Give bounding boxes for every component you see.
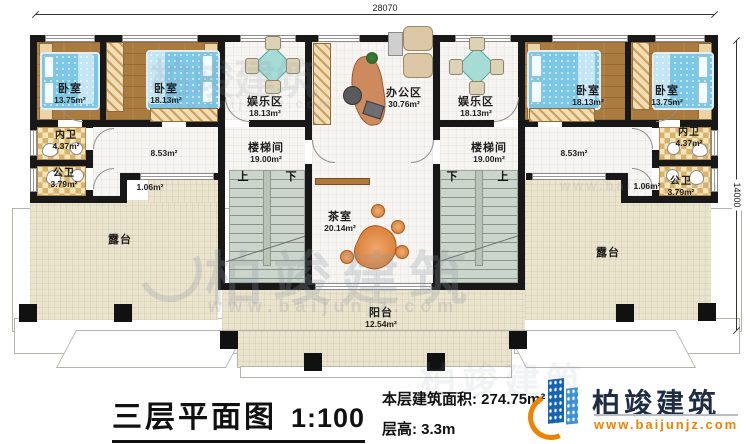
wardrobe: [106, 42, 124, 112]
pillar: [616, 304, 634, 322]
wardrobe: [632, 42, 650, 110]
room-label-bath-guest-l: 公卫3.79m²: [51, 168, 78, 189]
window: [45, 35, 95, 42]
brand-logo-building-icon: [548, 378, 564, 424]
room-label-balcony: 阳台12.54m²: [365, 308, 397, 329]
terrace-right-floor: [525, 200, 711, 320]
window: [30, 130, 37, 156]
room-label-bath-ensuite-r: 内卫4.37m²: [676, 127, 703, 148]
chair: [469, 37, 485, 51]
pillow: [698, 56, 708, 78]
pillar: [220, 331, 238, 349]
wall-guest-bath-r-bottom: [624, 196, 718, 203]
office-chair: [343, 86, 362, 105]
room-label-bedroom-l1: 卧室13.75m²: [54, 84, 86, 105]
wall-bath-l-inner: [86, 120, 93, 128]
area-label-landing-r: 1.06m²: [634, 181, 661, 191]
window: [318, 35, 360, 42]
dimension-line-top: [35, 14, 715, 15]
window: [140, 173, 214, 180]
stair-down-label-r: 下: [447, 168, 458, 184]
pillar: [698, 303, 716, 321]
chair: [449, 59, 463, 75]
pillow: [698, 82, 708, 104]
room-label-bath-ensuite-l: 内卫4.37m²: [53, 130, 80, 151]
room-label-entertainment-r: 娱乐区18.13m²: [458, 97, 494, 118]
room-label-entertainment-l: 娱乐区18.13m²: [247, 97, 283, 118]
floor-plan-canvas: 柏竣建筑 www.baijunjz.com 柏竣建筑 www.baijunjz.…: [0, 0, 750, 444]
stair-up-label-r: 上: [498, 168, 509, 184]
room-label-stairwell-l: 楼梯间19.00m²: [248, 143, 284, 164]
watermark-url: www.baijunjz.com: [208, 296, 459, 317]
wall-stair-r-outer: [518, 42, 525, 290]
wall-bath-r-divider: [657, 160, 718, 166]
stair-down-label-l: 下: [286, 168, 297, 184]
page-title: 三层平面图: [112, 401, 277, 434]
pillar: [304, 353, 322, 371]
dimension-tick: [711, 11, 718, 18]
pillar: [19, 304, 37, 322]
area-label-landing-l: 1.06m²: [137, 182, 164, 192]
wall-bed-r1-r2: [625, 42, 631, 127]
dimension-top-value: 28070: [369, 3, 400, 13]
stair-up-label-l: 上: [238, 168, 249, 184]
eave-left-slant: [56, 330, 246, 368]
pillow: [44, 82, 54, 104]
floor-height-info: 层高: 3.3m: [382, 418, 455, 439]
window: [711, 130, 718, 156]
sofa: [403, 26, 433, 51]
pillow: [44, 56, 54, 78]
dimension-right-value: 14000: [732, 179, 742, 210]
brand-website: www.baijunjz.com: [594, 414, 738, 432]
room-label-office: 办公区30.76m²: [386, 88, 422, 109]
wall-segment: [680, 120, 711, 127]
side-table: [388, 32, 403, 56]
tea-counter: [315, 178, 370, 185]
window: [552, 35, 628, 42]
brand-logo-building-icon: [566, 387, 578, 424]
room-label-terrace-l: 露台: [108, 235, 132, 246]
pillow: [531, 55, 542, 77]
window: [30, 168, 37, 192]
wall-segment: [30, 120, 58, 127]
window: [655, 35, 705, 42]
plan-scale: 1:100: [291, 403, 365, 433]
room-label-bedroom-r1: 卧室18.13m²: [572, 86, 604, 107]
chair: [490, 59, 504, 75]
room-label-bath-guest-r: 公卫3.79m²: [668, 176, 695, 197]
room-label-terrace-r: 露台: [596, 248, 620, 259]
room-label-bedroom-r2: 卧室13.75m²: [651, 86, 683, 107]
wall-guest-bath-l-bottom: [30, 196, 124, 203]
pillow: [531, 81, 542, 103]
tea-stool: [371, 204, 385, 218]
area-label-hall-l: 8.53m²: [151, 148, 178, 158]
room-label-stairwell-r: 楼梯间19.00m²: [471, 143, 507, 164]
sofa: [403, 53, 433, 78]
wall-segment: [249, 120, 305, 127]
dresser: [529, 108, 595, 122]
plant: [366, 52, 378, 64]
pillar: [509, 331, 527, 349]
wall-bath-l-divider: [30, 160, 93, 166]
area-label-hall-r: 8.53m²: [561, 148, 588, 158]
room-label-tearoom: 茶室20.14m²: [324, 212, 356, 233]
window: [122, 35, 198, 42]
wall-segment: [440, 120, 494, 127]
chair: [469, 81, 485, 95]
plan-title-block: 三层平面图1:100: [112, 392, 365, 443]
wall-center-right-a: [433, 42, 440, 140]
wall-landing-l-stub: [120, 173, 127, 203]
room-label-bedroom-l2: 卧室18.13m²: [150, 84, 182, 105]
pillar: [114, 304, 132, 322]
floor-area-info: 本层建筑面积: 274.75m²: [382, 388, 545, 409]
